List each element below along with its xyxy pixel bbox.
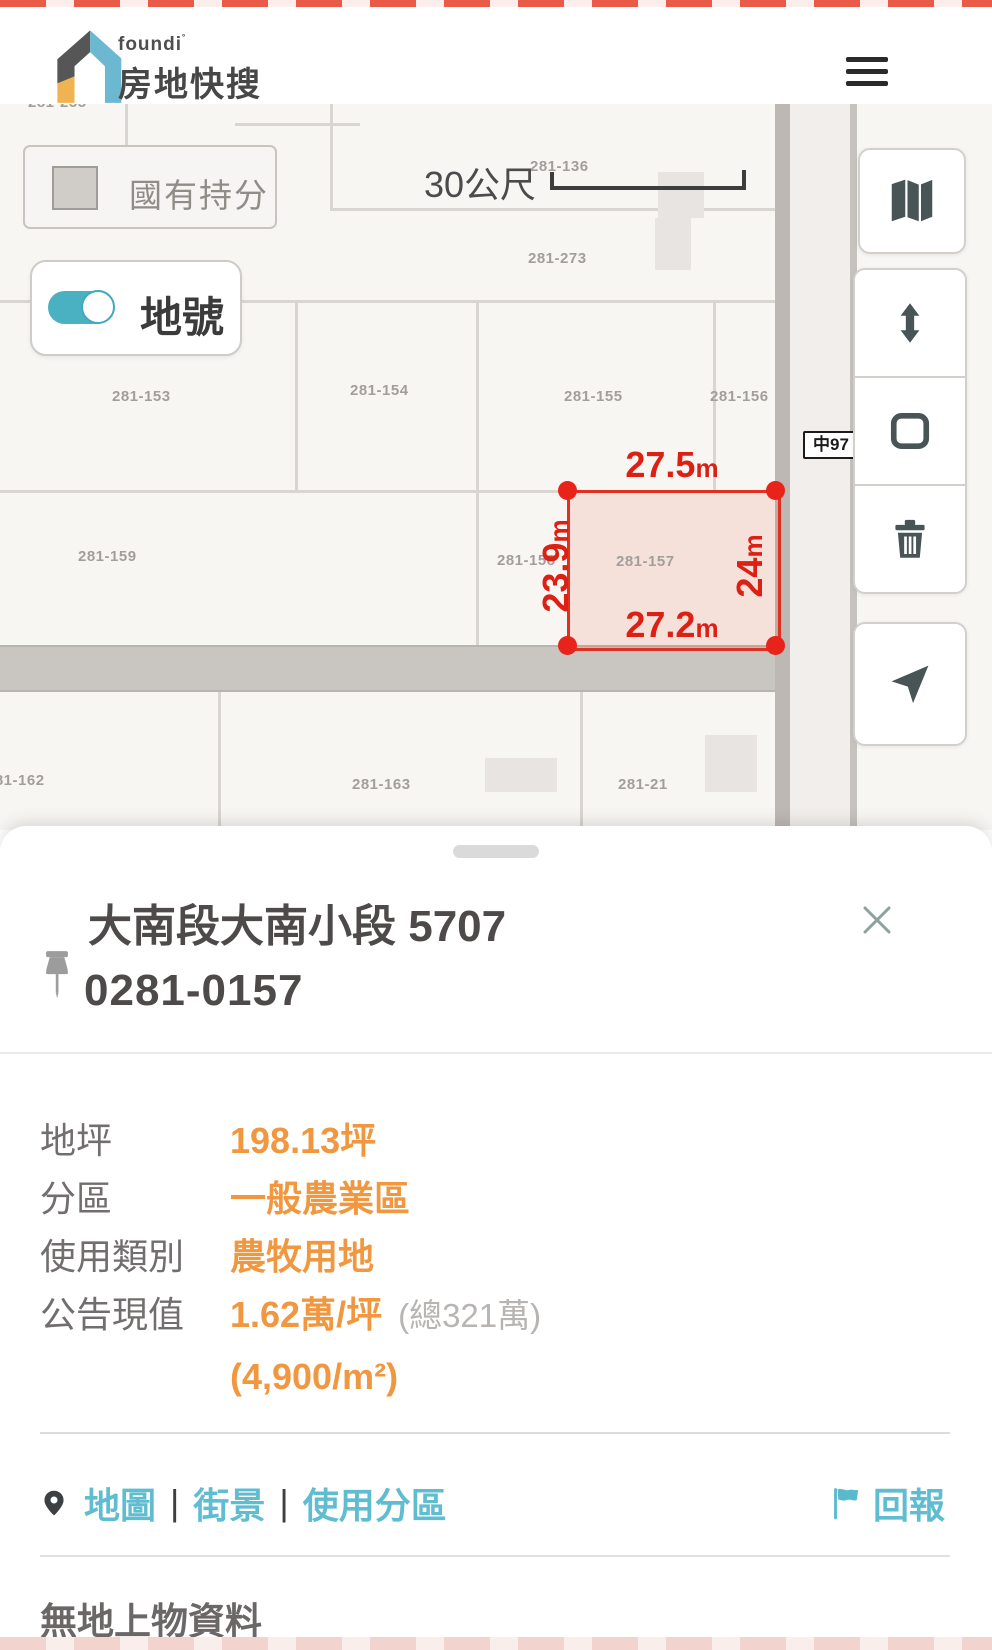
scale-bar-tick: [742, 170, 746, 188]
measurement-right: 24m: [729, 516, 771, 616]
parcel-section-title: 大南段大南小段 5707: [88, 890, 506, 954]
parcel-boundary-line: [476, 300, 479, 490]
legend-label: 國有持分: [129, 169, 269, 217]
locate-me-button[interactable]: [853, 622, 967, 746]
link-streetview[interactable]: 街景: [193, 1477, 265, 1529]
measurement-left: 23.9m: [535, 496, 577, 636]
scale-label: 30公尺: [424, 156, 536, 208]
parcel-corner-dot: [766, 481, 785, 500]
parcel-corner-dot: [766, 636, 785, 655]
building-footprint: [485, 758, 557, 792]
parcel-label: 281-162: [0, 772, 45, 789]
parcel-boundary-line: [295, 300, 298, 490]
cadastral-map-canvas[interactable]: 281-255 281-136 281-273 281-153 281-154 …: [0, 104, 992, 830]
detail-label: 分區: [40, 1170, 112, 1222]
map-links-row: 地圖 | 街景 | 使用分區: [40, 1477, 447, 1529]
menu-hamburger-icon[interactable]: [846, 57, 892, 93]
flag-icon: [829, 1483, 863, 1523]
trash-icon: [885, 514, 935, 564]
building-footprint: [658, 172, 704, 218]
parcel-id: 0281-0157: [84, 966, 303, 1016]
detail-value: (4,900/m²): [230, 1356, 414, 1398]
parcel-label: 281-154: [350, 382, 409, 399]
detail-value: 198.13坪: [230, 1112, 392, 1164]
parcel-label: 281-21: [618, 776, 668, 793]
detail-value: 一般農業區: [230, 1170, 426, 1222]
sheet-drag-handle[interactable]: [453, 845, 539, 858]
parcel-label: 281-155: [564, 388, 623, 405]
parcel-boundary-line: [476, 490, 479, 645]
detail-extra: (總321萬): [398, 1297, 541, 1334]
horizontal-road: [0, 645, 792, 692]
link-map[interactable]: 地圖: [84, 1477, 156, 1529]
app-header: foundi˚ 房地快搜: [0, 7, 992, 104]
vertical-road-edge: [775, 104, 790, 830]
toggle-knob: [81, 290, 115, 324]
close-icon: [857, 900, 897, 940]
scale-bar-tick: [550, 172, 554, 188]
parcel-boundary-line: [0, 490, 567, 493]
measure-distance-button[interactable]: [855, 270, 965, 376]
section-divider: [40, 1555, 950, 1557]
vertical-road-surface: [790, 104, 850, 830]
measure-area-button[interactable]: [855, 378, 965, 484]
detail-label: 公告現值: [40, 1286, 184, 1338]
parcel-boundary-line: [580, 688, 583, 830]
link-separator: |: [279, 1482, 288, 1524]
building-footprint: [705, 735, 757, 792]
parcel-label: 281-159: [78, 548, 137, 565]
app-root: foundi˚ 房地快搜 281-255 281-136 281-: [0, 0, 992, 1650]
parcel-label: 281-163: [352, 776, 411, 793]
road-shield-中97: 中97: [803, 431, 859, 459]
parcel-boundary-line: [125, 104, 128, 150]
toggle-label: 地號: [140, 284, 224, 345]
close-sheet-button[interactable]: [853, 896, 901, 944]
link-separator: |: [170, 1482, 179, 1524]
bottom-pink-strip: [0, 1637, 992, 1650]
scale-bar: [550, 186, 746, 190]
parcel-boundary-line: [235, 123, 360, 126]
parcel-number-toggle-card: 地號: [30, 260, 242, 356]
parcel-corner-dot: [558, 636, 577, 655]
measurement-top: 27.5m: [587, 444, 757, 486]
square-outline-icon: [884, 405, 936, 457]
location-pin-icon: [40, 1483, 68, 1523]
section-divider: [40, 1432, 950, 1434]
brand-ring-mark: ˚: [182, 34, 187, 46]
vertical-arrows-icon: [885, 298, 935, 348]
detail-label: 地坪: [40, 1112, 112, 1164]
clear-measure-button[interactable]: [855, 486, 965, 592]
report-button[interactable]: 回報: [829, 1477, 945, 1529]
link-zoning[interactable]: 使用分區: [303, 1477, 447, 1529]
folded-map-icon: [885, 174, 939, 228]
brand-name: foundi˚: [118, 34, 187, 56]
report-label: 回報: [873, 1477, 945, 1529]
parcel-label: 281-136: [530, 158, 589, 175]
detail-value: 農牧用地: [230, 1228, 390, 1280]
legend-card: 國有持分: [23, 145, 277, 229]
top-red-dashed-strip: [0, 0, 992, 7]
parcel-label: 281-153: [112, 388, 171, 405]
building-footprint: [655, 218, 691, 270]
parcel-label: 281-157: [616, 553, 675, 570]
parcel-detail-sheet: 大南段大南小段 5707 0281-0157 地坪 198.13坪 分區 一般農…: [0, 826, 992, 1650]
parcel-boundary-line: [218, 688, 221, 830]
measure-tools-group: [853, 268, 967, 594]
state-owned-share-checkbox[interactable]: [52, 166, 98, 210]
layers-map-button[interactable]: [858, 148, 966, 254]
parcel-label: 281-273: [528, 250, 587, 267]
parcel-boundary-line: [330, 208, 792, 211]
detail-value: 1.62萬/坪(總321萬): [230, 1286, 541, 1338]
pushpin-icon: [40, 950, 74, 1008]
app-title: 房地快搜: [118, 57, 262, 106]
parcel-number-toggle[interactable]: [48, 291, 112, 324]
navigation-arrow-icon: [884, 658, 936, 710]
detail-label: 使用類別: [40, 1228, 184, 1280]
section-divider: [0, 1052, 992, 1054]
parcel-label: 281-156: [710, 388, 769, 405]
parcel-boundary-line: [330, 104, 333, 208]
